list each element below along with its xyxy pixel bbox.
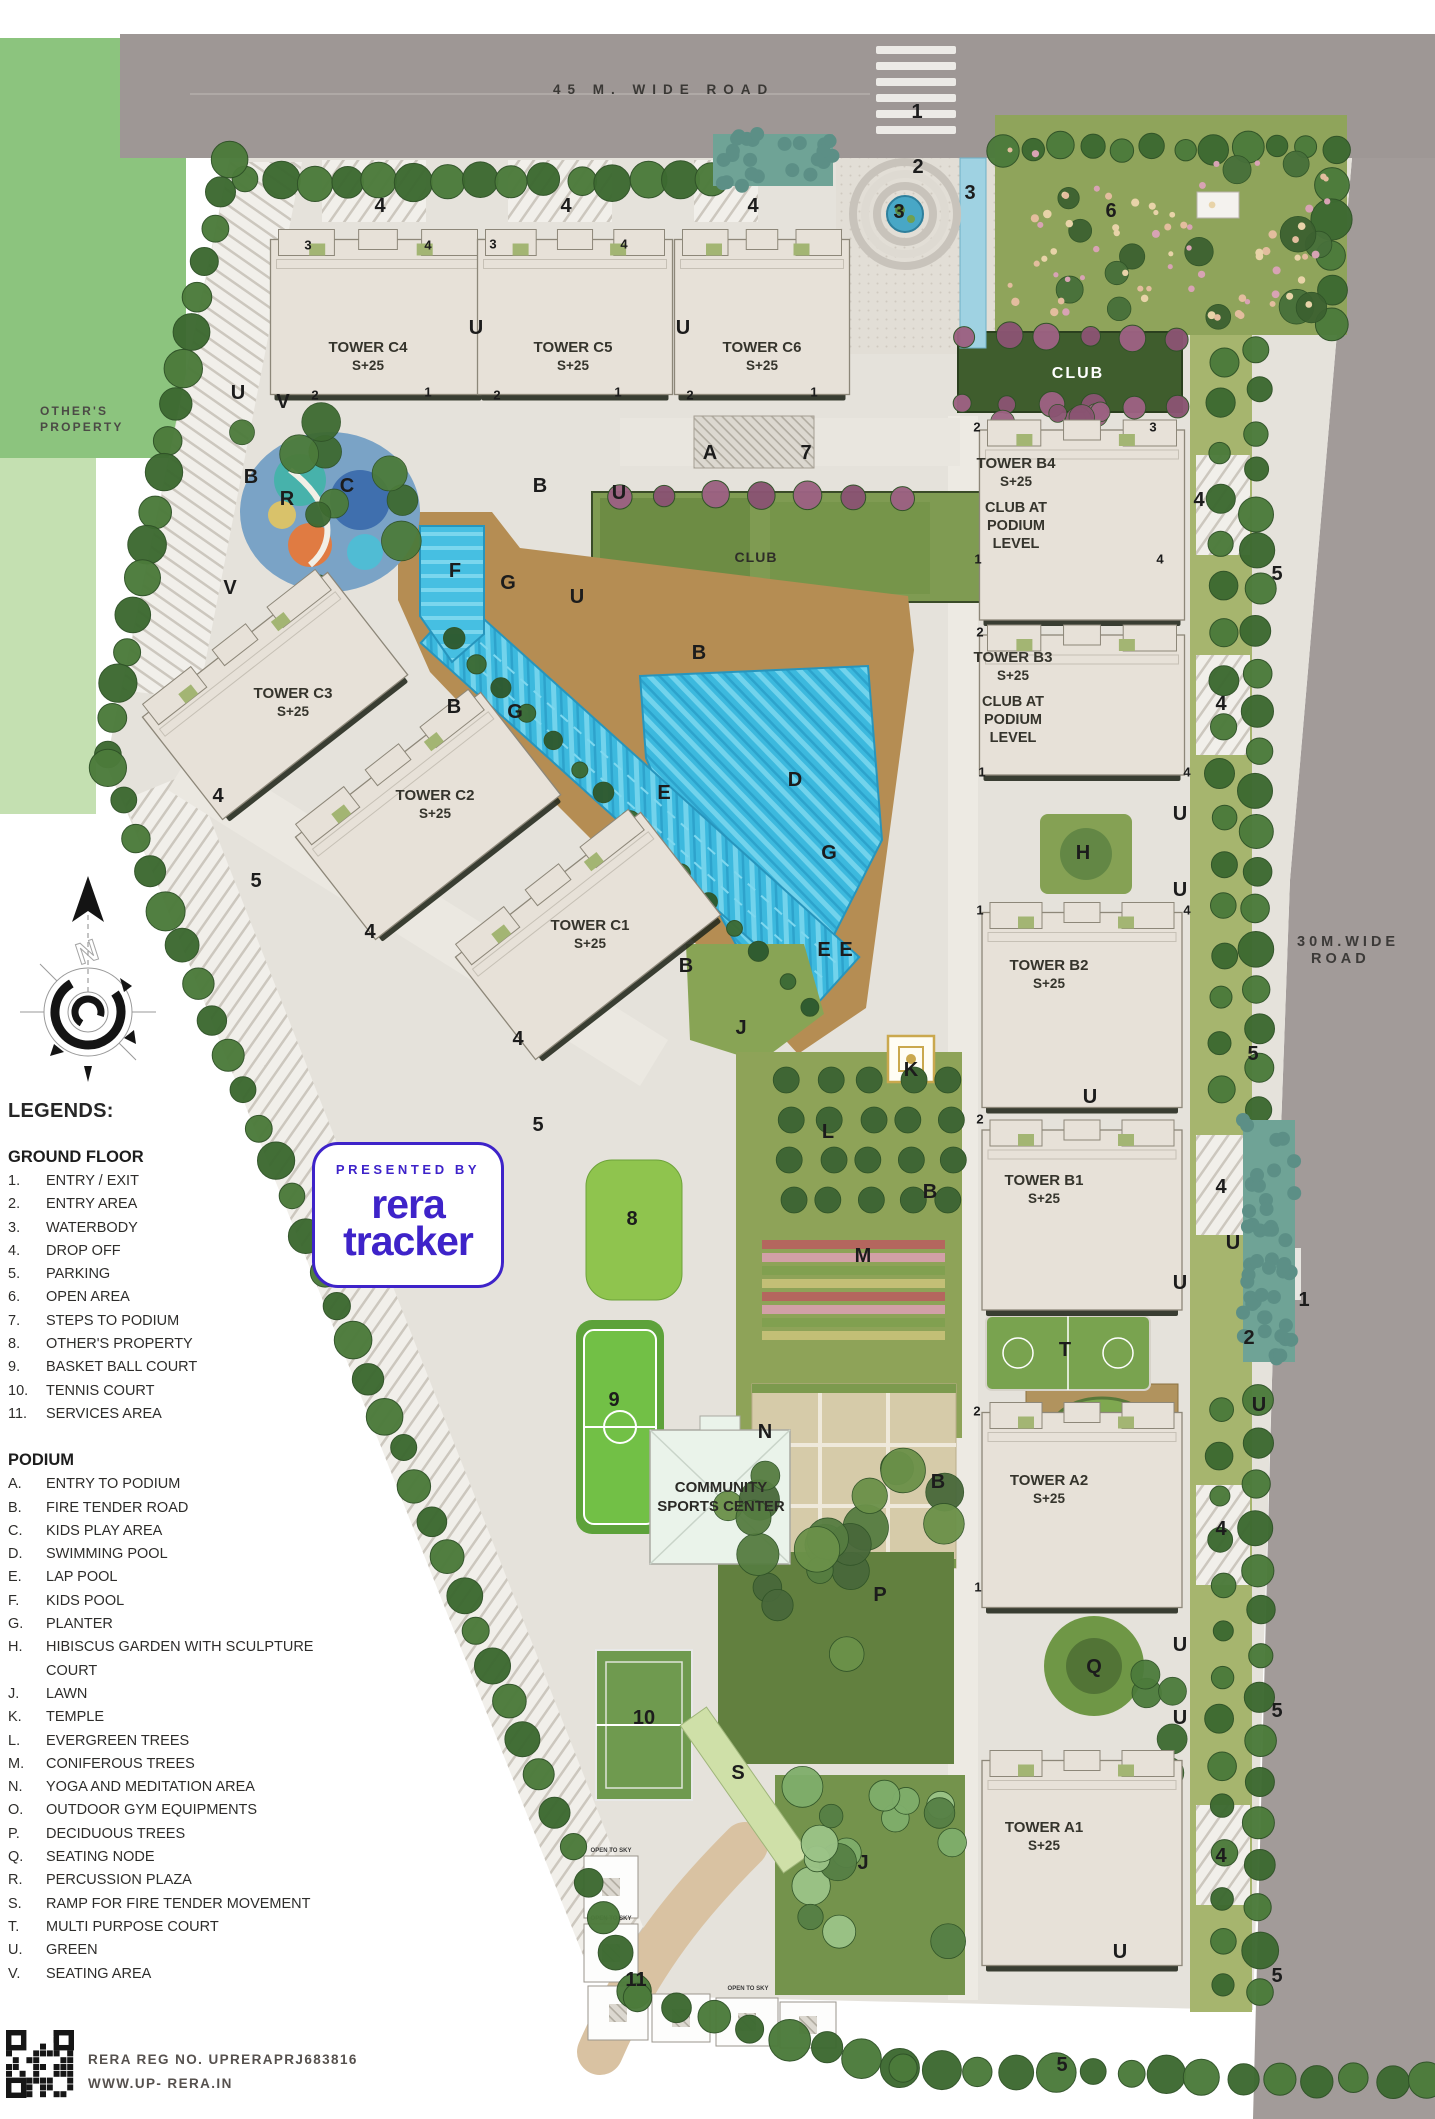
legend-item-key: B. <box>8 1497 46 1520</box>
tree <box>394 163 432 201</box>
tree <box>1242 1470 1270 1498</box>
map-marker-9: 9 <box>608 1389 619 1411</box>
tree <box>1211 1573 1236 1598</box>
tree <box>1266 135 1287 156</box>
map-marker-U: U <box>676 317 690 339</box>
tree <box>1119 325 1146 352</box>
legend-item: P.DECIDUOUS TREES <box>8 1823 353 1846</box>
tree <box>463 162 499 198</box>
map-marker-4: 4 <box>747 195 759 217</box>
tree <box>1147 2055 1185 2093</box>
map-marker-R: R <box>280 488 295 510</box>
tree <box>164 349 202 387</box>
tree <box>391 1435 417 1461</box>
legend-item-key: G. <box>8 1613 46 1636</box>
legend-item-key: 7. <box>8 1310 46 1333</box>
map-marker-B: B <box>923 1181 937 1203</box>
map-marker-4: 4 <box>1215 1845 1227 1867</box>
tower-floors-a2: S+25 <box>1033 1491 1065 1506</box>
legend-item-label: WATERBODY <box>46 1217 138 1240</box>
tree <box>352 1364 383 1395</box>
tree <box>1243 858 1272 887</box>
road-30m-line2: ROAD <box>1297 951 1399 968</box>
legend-item-label: FIRE TENDER ROAD <box>46 1497 188 1520</box>
community-center-label: SPORTS CENTER <box>657 1498 785 1515</box>
tree <box>1210 986 1232 1008</box>
legend-item-label: SEATING NODE <box>46 1846 155 1869</box>
legend-item-key: L. <box>8 1730 46 1753</box>
map-marker-V: V <box>276 391 290 413</box>
tree <box>698 2000 731 2033</box>
map-marker-5: 5 <box>1056 2054 1067 2076</box>
map-marker-C: C <box>340 475 354 497</box>
map-marker-Q: Q <box>1086 1656 1102 1678</box>
tree <box>954 327 975 348</box>
tree <box>1118 2060 1145 2087</box>
legend-item-label: BASKET BALL COURT <box>46 1356 197 1379</box>
map-marker-B: B <box>931 1471 945 1493</box>
legend-item-label: ENTRY TO PODIUM <box>46 1473 180 1496</box>
legend-item: 6.OPEN AREA <box>8 1286 353 1309</box>
map-marker-2: 2 <box>973 420 980 435</box>
map-marker-4: 4 <box>1215 1518 1227 1540</box>
legend-item: 3.WATERBODY <box>8 1217 353 1240</box>
tower-b1 <box>982 1120 1182 1316</box>
legend-item-label: DECIDUOUS TREES <box>46 1823 185 1846</box>
tree <box>842 2039 882 2079</box>
presented-by-label: PRESENTED BY <box>315 1162 501 1177</box>
tree <box>1241 894 1270 923</box>
tree <box>1247 1595 1275 1623</box>
tree <box>1175 140 1196 161</box>
tree <box>431 165 465 199</box>
tower-label-b2: TOWER B2 <box>1010 957 1089 974</box>
map-marker-J: J <box>735 1017 746 1039</box>
tree <box>544 731 562 749</box>
tree <box>1243 976 1270 1003</box>
tree <box>801 998 819 1016</box>
legend-item-key: K. <box>8 1706 46 1729</box>
tree <box>1198 135 1228 165</box>
tree <box>987 135 1019 167</box>
map-marker-H: H <box>1076 842 1090 864</box>
map-marker-4: 4 <box>1215 1176 1227 1198</box>
tree <box>212 1039 244 1071</box>
tree <box>1209 442 1230 463</box>
tree <box>1238 932 1274 968</box>
legend-section-title-1: PODIUM <box>8 1451 353 1470</box>
map-marker-G: G <box>507 701 523 723</box>
map-marker-2: 2 <box>1243 1327 1254 1349</box>
tower-label-b4: TOWER B4 <box>977 455 1057 472</box>
tower-club-note-b3: PODIUM <box>984 712 1042 728</box>
legend-item-key: 3. <box>8 1217 46 1240</box>
tree <box>1213 1621 1233 1641</box>
map-marker-J: J <box>857 1852 868 1874</box>
tower-floors-c6: S+25 <box>746 358 778 373</box>
map-marker-4: 4 <box>1183 903 1191 918</box>
tree <box>366 1399 403 1436</box>
tree <box>1211 1666 1233 1688</box>
legend-item-label: TEMPLE <box>46 1706 104 1729</box>
tower-floors-c4: S+25 <box>352 358 384 373</box>
tree <box>153 427 182 456</box>
legend-item: K.TEMPLE <box>8 1706 353 1729</box>
legend-item-label: SERVICES AREA <box>46 1403 162 1426</box>
map-marker-B: B <box>692 642 706 664</box>
waterbody-fountain <box>853 162 957 266</box>
tree <box>1212 1974 1234 1996</box>
map-marker-K: K <box>904 1059 919 1081</box>
map-marker-D: D <box>788 769 802 791</box>
tree <box>1210 1794 1233 1817</box>
tree <box>263 161 300 198</box>
tree <box>135 856 166 887</box>
road-30m-line1: 30M.WIDE <box>1297 934 1399 951</box>
tree <box>297 166 332 201</box>
map-marker-1: 1 <box>424 385 431 400</box>
legend-item: A.ENTRY TO PODIUM <box>8 1473 353 1496</box>
legend-item-key: 6. <box>8 1286 46 1309</box>
legend-item-key: P. <box>8 1823 46 1846</box>
tree <box>230 1077 256 1103</box>
tree <box>568 167 597 196</box>
tree <box>1183 2059 1219 2095</box>
tree <box>1228 2064 1259 2095</box>
others-property-line2: PROPERTY <box>40 419 124 435</box>
legend-item-key: 11. <box>8 1403 46 1426</box>
tower-label-c2: TOWER C2 <box>396 787 475 804</box>
legend-item-label: RAMP FOR FIRE TENDER MOVEMENT <box>46 1893 311 1916</box>
tree <box>493 1684 527 1718</box>
legend-item: 7.STEPS TO PODIUM <box>8 1310 353 1333</box>
tree <box>1244 1850 1275 1881</box>
legend-item-key: Q. <box>8 1846 46 1869</box>
tree <box>1211 1929 1237 1955</box>
tower-club-note-b4: CLUB AT <box>985 500 1047 516</box>
tree <box>190 248 218 276</box>
map-marker-U: U <box>1173 1634 1187 1656</box>
tree <box>793 481 822 510</box>
legend-item-label: DROP OFF <box>46 1240 121 1263</box>
legend-item-label: TENNIS COURT <box>46 1380 155 1403</box>
tree <box>173 314 210 351</box>
tree <box>467 655 486 674</box>
tree <box>841 485 866 510</box>
legend-item-key: O. <box>8 1799 46 1822</box>
tower-c4 <box>271 230 486 401</box>
legend-item: U.GREEN <box>8 1939 353 1962</box>
map-marker-1: 1 <box>1298 1289 1309 1311</box>
map-marker-G: G <box>821 842 837 864</box>
map-marker-3: 3 <box>304 238 311 253</box>
legend-item-label: YOGA AND MEDITATION AREA <box>46 1776 255 1799</box>
tree <box>702 481 729 508</box>
legend-item-key: J. <box>8 1683 46 1706</box>
map-marker-B: B <box>447 696 461 718</box>
tree <box>99 664 137 702</box>
map-marker-F: F <box>449 560 461 582</box>
legend-item: 9.BASKET BALL COURT <box>8 1356 353 1379</box>
tower-floors-b1: S+25 <box>1028 1191 1060 1206</box>
legend-item: Q.SEATING NODE <box>8 1846 353 1869</box>
tree <box>197 1006 226 1035</box>
legend-item-label: PARKING <box>46 1263 110 1286</box>
map-marker-U: U <box>1226 1232 1240 1254</box>
tree <box>1211 893 1237 919</box>
legend-item: 4.DROP OFF <box>8 1240 353 1263</box>
legend-item-label: MULTI PURPOSE COURT <box>46 1916 219 1939</box>
tree <box>1245 457 1269 481</box>
qr-code <box>6 2030 74 2098</box>
tower-label-c4: TOWER C4 <box>329 339 409 356</box>
map-marker-2: 2 <box>493 388 500 403</box>
tower-label-b1: TOWER B1 <box>1005 1172 1084 1189</box>
map-marker-11: 11 <box>625 1969 646 1991</box>
legend-item-label: HIBISCUS GARDEN WITH SCULPTURE COURT <box>46 1636 353 1683</box>
tree <box>417 1507 447 1537</box>
legend-item-key: T. <box>8 1916 46 1939</box>
tree <box>182 282 212 312</box>
legend-item-key: C. <box>8 1520 46 1543</box>
tree <box>1239 497 1274 532</box>
tree <box>1208 531 1233 556</box>
map-marker-E: E <box>839 939 852 961</box>
tree <box>1210 1486 1230 1506</box>
legend-item: T.MULTI PURPOSE COURT <box>8 1916 353 1939</box>
tower-label-a2: TOWER A2 <box>1010 1472 1088 1489</box>
map-marker-1: 1 <box>974 1580 981 1595</box>
map-marker-3: 3 <box>1149 420 1156 435</box>
club-label-1: CLUB <box>735 549 778 565</box>
tree <box>922 2051 961 2090</box>
tree <box>1211 852 1237 878</box>
tree <box>572 762 588 778</box>
tower-floors-b4: S+25 <box>1000 474 1032 489</box>
tree <box>1315 168 1350 203</box>
map-marker-4: 4 <box>1156 552 1164 567</box>
map-marker-E: E <box>817 939 830 961</box>
others-property-label: OTHER'S PROPERTY <box>40 403 124 435</box>
legend-item-label: PLANTER <box>46 1613 113 1636</box>
legend-item: 11.SERVICES AREA <box>8 1403 353 1426</box>
tree <box>1240 533 1275 568</box>
map-marker-4: 4 <box>1183 765 1191 780</box>
tree <box>447 1578 483 1614</box>
tree <box>332 167 364 199</box>
map-marker-S: S <box>731 1762 744 1784</box>
tree <box>1246 738 1272 764</box>
map-marker-U: U <box>231 382 245 404</box>
tree <box>145 453 182 490</box>
map-marker-1: 1 <box>976 903 983 918</box>
others-property-line1: OTHER'S <box>40 403 124 419</box>
open-to-sky-label: OPEN TO SKY <box>591 1848 632 1854</box>
tree <box>748 941 768 961</box>
presented-by-badge: PRESENTED BY rera tracker <box>312 1142 504 1288</box>
legend-section-title-0: GROUND FLOOR <box>8 1148 353 1167</box>
tree <box>1210 1398 1234 1422</box>
legend-item-key: 10. <box>8 1380 46 1403</box>
club-label-0: CLUB <box>1052 365 1104 382</box>
map-marker-1: 1 <box>810 385 817 400</box>
map-marker-N: N <box>758 1421 772 1443</box>
tree <box>598 1935 633 1970</box>
map-marker-U: U <box>1252 1394 1266 1416</box>
map-marker-M: M <box>855 1245 872 1267</box>
compass: N <box>20 876 156 1082</box>
legend-item: 1.ENTRY / EXIT <box>8 1170 353 1193</box>
tree <box>1242 1932 1279 1969</box>
tree <box>111 787 137 813</box>
road-30m-label: 30M.WIDE ROAD <box>1297 934 1399 968</box>
map-marker-3: 3 <box>964 182 975 204</box>
tree <box>430 1540 464 1574</box>
legend-item-label: GREEN <box>46 1939 98 1962</box>
legend-item: G.PLANTER <box>8 1613 353 1636</box>
map-marker-1: 1 <box>974 552 981 567</box>
legend-title: LEGENDS: <box>8 1100 353 1123</box>
map-marker-4: 4 <box>374 195 386 217</box>
tree <box>89 749 126 786</box>
legend-item: L.EVERGREEN TREES <box>8 1730 353 1753</box>
tree <box>1245 1014 1275 1044</box>
legend-item: F.KIDS POOL <box>8 1590 353 1613</box>
tree <box>1205 759 1235 789</box>
tree <box>160 388 192 420</box>
tree <box>361 162 397 198</box>
tree <box>662 1993 692 2023</box>
tree <box>139 496 172 529</box>
tree <box>1033 323 1060 350</box>
map-marker-4: 4 <box>1193 489 1205 511</box>
legend-item-label: OUTDOOR GYM EQUIPMENTS <box>46 1799 257 1822</box>
legend-item: C.KIDS PLAY AREA <box>8 1520 353 1543</box>
tree <box>539 1797 570 1828</box>
tree <box>1301 2066 1333 2098</box>
tree <box>1238 773 1273 808</box>
legend-item: O.OUTDOOR GYM EQUIPMENTS <box>8 1799 353 1822</box>
tree <box>1205 1704 1234 1733</box>
tree <box>1241 695 1273 727</box>
tree <box>114 639 141 666</box>
tree <box>1166 395 1189 418</box>
legend-item: M.CONIFEROUS TREES <box>8 1753 353 1776</box>
legend-item-key: 4. <box>8 1240 46 1263</box>
legend-item: J.LAWN <box>8 1683 353 1706</box>
tower-floors-c5: S+25 <box>557 358 589 373</box>
legend-item-key: F. <box>8 1590 46 1613</box>
tower-club-note-b3: CLUB AT <box>982 694 1044 710</box>
tree <box>1244 422 1268 446</box>
tower-a2 <box>982 1403 1182 1614</box>
tower-floors-c2: S+25 <box>419 806 451 821</box>
map-marker-U: U <box>469 317 483 339</box>
tree <box>1240 616 1271 647</box>
svg-text:N: N <box>72 934 103 972</box>
map-marker-G: G <box>500 572 516 594</box>
legend-item-key: A. <box>8 1473 46 1496</box>
map-marker-U: U <box>1113 1941 1127 1963</box>
legend-panel: LEGENDS: GROUND FLOOR1.ENTRY / EXIT2.ENT… <box>8 1100 353 1986</box>
tree <box>125 560 161 596</box>
map-marker-T: T <box>1059 1339 1071 1361</box>
tower-label-c3: TOWER C3 <box>254 685 333 702</box>
tree <box>1110 139 1133 162</box>
tree <box>999 2055 1034 2090</box>
legend-item-label: KIDS PLAY AREA <box>46 1520 162 1543</box>
tower-label-c6: TOWER C6 <box>723 339 802 356</box>
map-marker-A: A <box>703 442 717 464</box>
tree <box>523 1759 554 1790</box>
tree <box>122 824 150 852</box>
legend-item-key: R. <box>8 1869 46 1892</box>
tree <box>462 1617 489 1644</box>
lawn-8 <box>586 1160 682 1300</box>
map-marker-U: U <box>1083 1086 1097 1108</box>
tree <box>1047 131 1075 159</box>
legend-item: B.FIRE TENDER ROAD <box>8 1497 353 1520</box>
legend-item-label: ENTRY / EXIT <box>46 1170 139 1193</box>
site-plan-poster: OPEN TO SKYOPEN TO SKYOPEN TO SKY N TOWE… <box>0 0 1435 2119</box>
tree <box>963 2057 992 2086</box>
tree <box>593 782 614 803</box>
legend-item: D.SWIMMING POOL <box>8 1543 353 1566</box>
tree <box>1123 396 1146 419</box>
tree <box>98 704 127 733</box>
tree <box>1245 1725 1277 1757</box>
tree <box>748 482 776 510</box>
tree <box>1244 1894 1271 1921</box>
tower-label-a1: TOWER A1 <box>1005 1819 1083 1836</box>
tree <box>1377 2066 1410 2099</box>
tree <box>1264 2063 1296 2095</box>
tree <box>1208 1032 1231 1055</box>
tree <box>812 2032 843 2063</box>
legend-item-key: 9. <box>8 1356 46 1379</box>
tree <box>206 177 236 207</box>
map-marker-1: 1 <box>911 101 922 123</box>
map-marker-3: 3 <box>893 201 904 223</box>
legend-item: 8.OTHER'S PROPERTY <box>8 1333 353 1356</box>
tree <box>653 485 674 506</box>
tree <box>1247 377 1272 402</box>
map-marker-2: 2 <box>976 1112 983 1127</box>
tree <box>891 487 915 511</box>
legend-item-label: SEATING AREA <box>46 1963 151 1986</box>
map-marker-3: 3 <box>489 237 496 252</box>
map-marker-E: E <box>657 782 670 804</box>
tree <box>146 892 185 931</box>
tree <box>1165 328 1188 351</box>
tree <box>1206 388 1235 417</box>
map-marker-2: 2 <box>686 388 693 403</box>
tree <box>953 394 971 412</box>
tree <box>889 2054 917 2082</box>
tree <box>128 525 167 564</box>
brand-tracker: tracker <box>315 1223 501 1260</box>
legend-item-key: 5. <box>8 1263 46 1286</box>
legend-item: S.RAMP FOR FIRE TENDER MOVEMENT <box>8 1893 353 1916</box>
legend-item-label: ENTRY AREA <box>46 1193 137 1216</box>
tree <box>1139 133 1164 158</box>
tree <box>736 2015 764 2043</box>
tree <box>1339 2063 1369 2093</box>
tree <box>495 166 527 198</box>
map-marker-L: L <box>822 1121 834 1143</box>
map-marker-U: U <box>1173 879 1187 901</box>
map-marker-6: 6 <box>1105 200 1116 222</box>
